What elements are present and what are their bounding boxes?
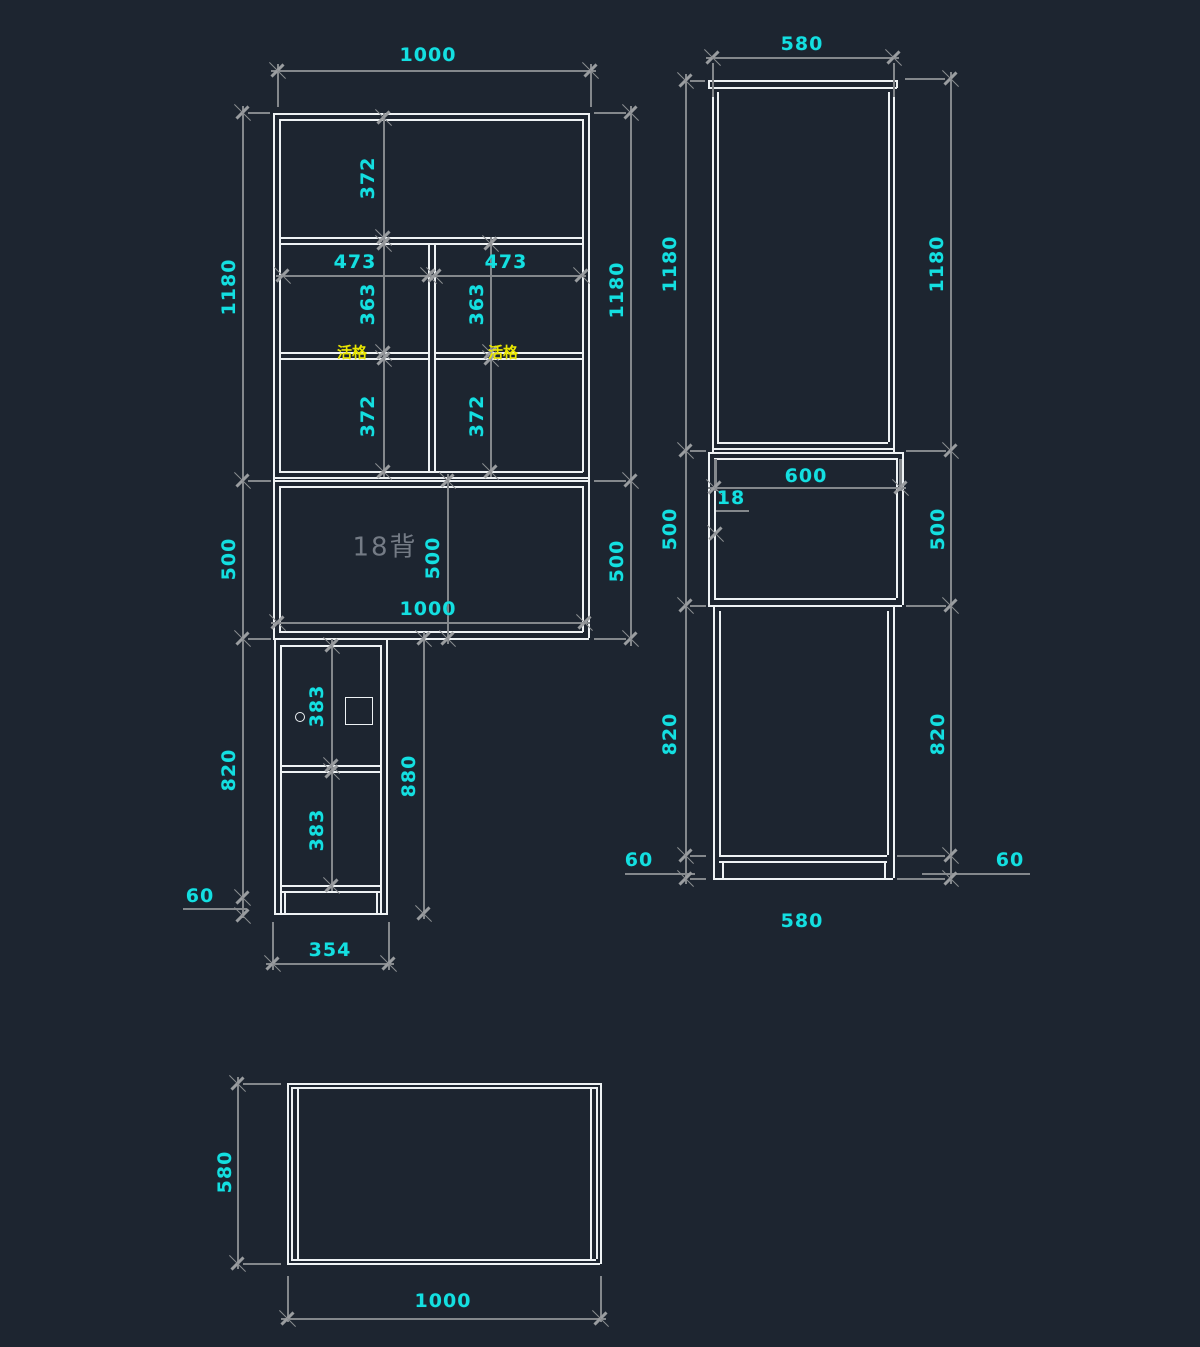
object-line: [719, 861, 887, 863]
object-line: [279, 119, 281, 472]
object-line: [884, 861, 886, 878]
object-line: [708, 87, 897, 89]
dim-label: 372: [466, 395, 488, 438]
dimension-line: [630, 106, 632, 646]
object-line: [596, 1087, 598, 1259]
object-line: [714, 598, 896, 600]
dimension-line: [490, 352, 492, 477]
dimension-line: [690, 855, 706, 857]
object-line: [291, 1259, 596, 1261]
dim-label: 820: [927, 713, 949, 756]
dim-label: 383: [306, 685, 328, 728]
object-line: [888, 92, 890, 442]
dimension-line: [922, 873, 1030, 875]
dim-label: 600: [785, 465, 828, 487]
object-line: [279, 237, 583, 239]
object-line: [280, 645, 282, 913]
object-line: [893, 605, 895, 878]
object-line: [713, 878, 893, 880]
dim-label: 60: [625, 849, 653, 871]
dimension-line: [271, 622, 590, 624]
object-line: [274, 638, 276, 915]
dimension-line: [690, 605, 706, 607]
dimension-line: [716, 510, 749, 512]
dim-label: 473: [334, 251, 377, 273]
object-line: [717, 92, 719, 442]
dim-label: 1180: [606, 262, 628, 319]
dimension-line: [594, 480, 626, 482]
dimension-line: [331, 765, 333, 891]
object-line: [722, 861, 724, 878]
dimension-line: [893, 63, 895, 97]
object-line: [279, 471, 583, 473]
dimension-line: [906, 605, 946, 607]
object-line: [273, 480, 275, 638]
dim-label: 354: [309, 939, 352, 961]
object-line: [280, 891, 380, 893]
dimension-line: [706, 57, 899, 59]
object-line: [708, 452, 902, 454]
object-line: [279, 119, 583, 121]
object-line: [287, 1083, 600, 1085]
dim-label: 500: [927, 508, 949, 551]
dim-label: 820: [218, 749, 240, 792]
dim-label: 60: [186, 885, 214, 907]
dimension-line: [237, 1077, 239, 1269]
object-line: [582, 119, 584, 472]
knob-circle: [295, 712, 305, 722]
dim-label: 1180: [926, 236, 948, 293]
object-line: [274, 913, 386, 915]
dimension-line: [897, 878, 945, 880]
dim-label: 18: [717, 487, 745, 509]
dimension-line: [281, 1318, 606, 1320]
object-line: [717, 442, 888, 444]
dim-label: 363: [357, 283, 379, 326]
object-line: [887, 611, 889, 855]
dim-label: 580: [214, 1151, 236, 1194]
object-line: [902, 452, 904, 605]
dim-label: 500: [606, 540, 628, 583]
object-line: [279, 486, 583, 488]
object-line: [380, 645, 382, 913]
dim-label: 580: [781, 910, 824, 932]
object-line: [297, 1087, 299, 1259]
object-line: [386, 638, 388, 915]
dimension-line: [248, 638, 271, 640]
object-line: [712, 448, 893, 450]
dim-label: 500: [422, 537, 444, 580]
object-line: [273, 113, 589, 115]
dim-label: 580: [781, 33, 824, 55]
dim-label: 880: [398, 755, 420, 798]
dim-label: 372: [357, 157, 379, 200]
dimension-line: [271, 70, 596, 72]
dimension-line: [248, 112, 270, 114]
object-line: [287, 1083, 289, 1264]
object-line: [719, 855, 887, 857]
object-line: [896, 458, 898, 598]
back-panel-note: 18背: [352, 527, 417, 564]
movable-shelf-tag: 活格: [488, 342, 518, 363]
dim-label: 500: [659, 508, 681, 551]
dimension-line: [950, 72, 952, 884]
dimension-line: [423, 632, 425, 919]
object-line: [284, 891, 286, 913]
object-line: [588, 113, 590, 481]
dim-label: 1000: [400, 598, 457, 620]
dimension-line: [685, 74, 687, 884]
dimension-line: [897, 855, 945, 857]
object-line: [273, 638, 589, 640]
dim-label: 363: [466, 283, 488, 326]
object-line: [273, 480, 589, 482]
object-line: [708, 80, 710, 88]
dimension-line: [625, 873, 695, 875]
cad-viewport[interactable]: 10001180372473473363363活格活格372372118018背…: [0, 0, 1200, 1347]
object-line: [279, 243, 583, 245]
dimension-line: [243, 1263, 281, 1265]
dimension-line: [690, 878, 706, 880]
object-line: [719, 611, 721, 855]
dimension-line: [331, 639, 333, 771]
dim-label: 372: [357, 395, 379, 438]
object-line: [893, 87, 895, 452]
dimension-line: [594, 112, 626, 114]
dim-label: 60: [996, 849, 1024, 871]
dimension-line: [594, 638, 626, 640]
dim-label: 820: [659, 713, 681, 756]
handle-square: [345, 697, 373, 725]
dimension-line: [266, 963, 394, 965]
dim-label: 500: [218, 538, 240, 581]
object-line: [714, 458, 896, 460]
dim-label: 383: [306, 809, 328, 852]
dim-label: 1180: [218, 259, 240, 316]
dimension-line: [242, 106, 244, 918]
dimension-line: [428, 275, 586, 277]
object-line: [712, 87, 714, 452]
dimension-line: [712, 63, 714, 97]
dimension-line: [905, 78, 945, 80]
movable-shelf-tag: 活格: [337, 342, 367, 363]
dimension-line: [690, 450, 706, 452]
object-line: [582, 486, 584, 632]
object-line: [279, 486, 281, 632]
dimension-line: [248, 480, 271, 482]
dim-label: 1000: [400, 44, 457, 66]
object-line: [279, 631, 583, 633]
dimension-line: [383, 237, 385, 358]
dimension-line: [383, 352, 385, 477]
dimension-line: [276, 275, 434, 277]
object-line: [287, 1263, 600, 1265]
object-line: [273, 477, 589, 479]
dimension-line: [906, 450, 946, 452]
object-line: [590, 1087, 592, 1259]
object-line: [291, 1087, 293, 1259]
object-line: [291, 1087, 596, 1089]
dimension-line: [690, 80, 705, 82]
dim-label: 1180: [659, 236, 681, 293]
object-line: [708, 605, 902, 607]
object-line: [273, 113, 275, 481]
object-line: [708, 80, 897, 82]
object-line: [713, 605, 715, 878]
dimension-line: [243, 1083, 281, 1085]
object-line: [600, 1083, 602, 1264]
dimension-line: [383, 113, 385, 243]
dim-label: 1000: [415, 1290, 472, 1312]
object-line: [376, 891, 378, 913]
dim-label: 473: [485, 251, 528, 273]
object-line: [896, 80, 898, 88]
